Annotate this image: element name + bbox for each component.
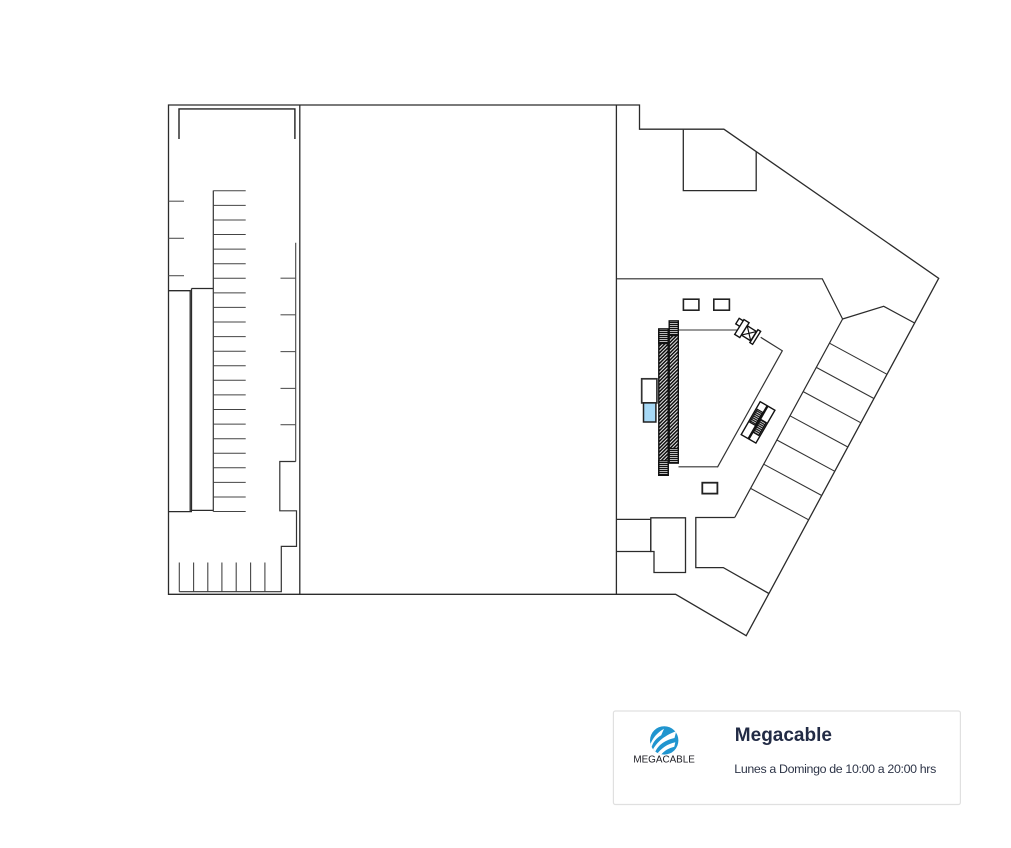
svg-text:Lunes a Domingo de 10:00 a 20:: Lunes a Domingo de 10:00 a 20:00 hrs bbox=[734, 762, 936, 776]
svg-text:Megacable: Megacable bbox=[735, 725, 832, 746]
svg-text:MEGACABLE: MEGACABLE bbox=[633, 755, 695, 766]
